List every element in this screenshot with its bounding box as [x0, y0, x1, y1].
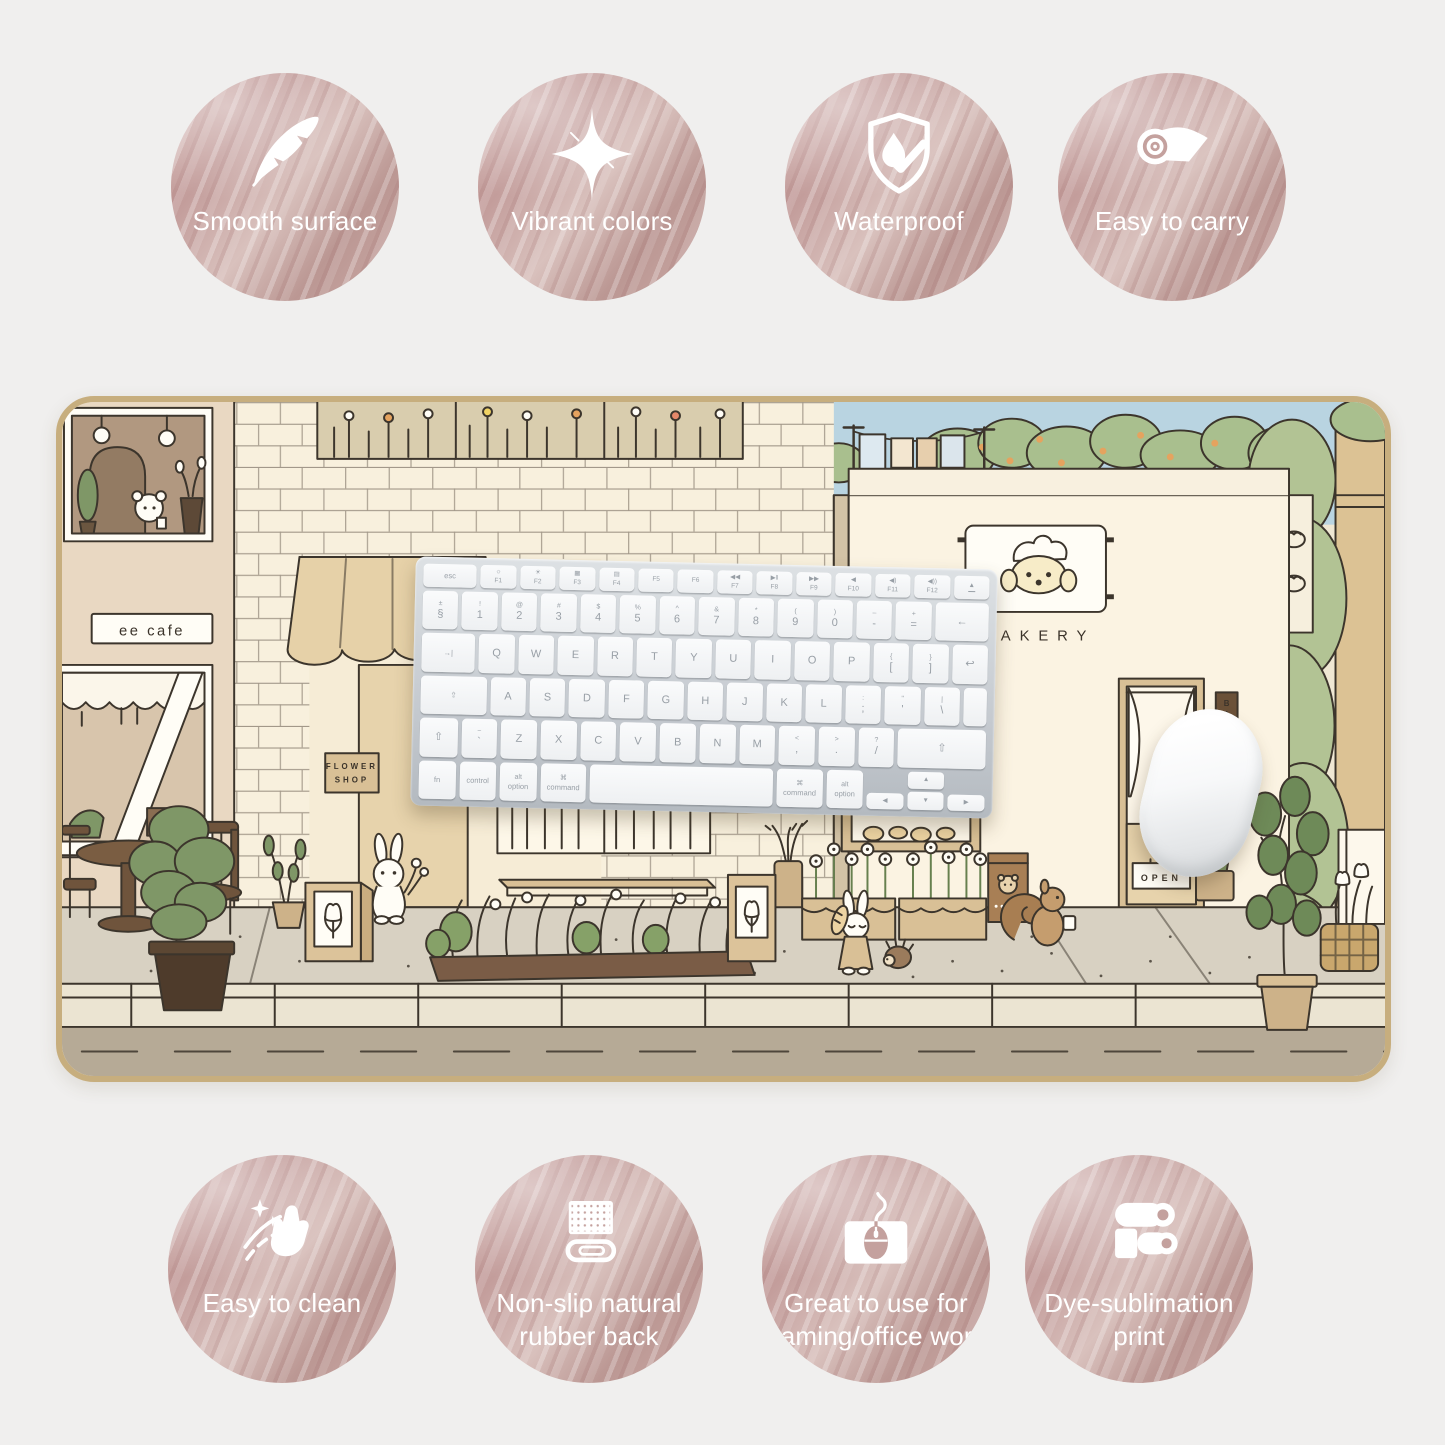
- keyboard-key-V: V: [620, 722, 657, 761]
- waterproof-shield-icon: [855, 107, 943, 201]
- keyboard-key-3: #3: [541, 593, 577, 632]
- keyboard-key-esc: esc: [423, 564, 477, 588]
- keyboard-key-space: [590, 764, 774, 807]
- keyboard-row: fncontrolaltoption⌘command⌘commandaltopt…: [418, 760, 985, 811]
- keyboard-key-B: B: [659, 723, 696, 762]
- tulip-sandwich-board-2: [728, 875, 775, 961]
- hanging-laundry: [860, 434, 965, 469]
- feature-badge-dye-sublimation: Dye-sublimation print: [1025, 1155, 1253, 1383]
- keyboard-key-Y: Y: [676, 639, 712, 678]
- keyboard-key-E: E: [557, 636, 593, 675]
- keyboard-key-;: :;: [845, 685, 881, 724]
- keyboard-key-H: H: [687, 681, 723, 720]
- cafe-sign-text: ee cafe: [119, 624, 185, 640]
- keyboard-key-F11: ◀)F11: [875, 574, 911, 598]
- keyboard-key-arrow-up-down: ▲▼: [907, 771, 944, 810]
- keyboard-key-F7: ◀◀F7: [717, 570, 753, 594]
- keyboard-key-F5: F5: [638, 568, 674, 592]
- keyboard-key-1: !1: [462, 591, 498, 630]
- keyboard-key-command-left: ⌘command: [540, 763, 587, 802]
- cafe-upper-window: [64, 408, 212, 541]
- keyboard-key-F4: ▤F4: [599, 568, 635, 592]
- tulip-sandwich-board-1: [305, 883, 372, 961]
- badge-label: Smooth surface: [193, 205, 378, 238]
- flower-shop-sign-line2: SHOP: [335, 776, 369, 785]
- keyboard-key-D: D: [569, 679, 605, 718]
- flower-shop-sign: FLOWER SHOP: [325, 753, 378, 792]
- keyboard-key-Q: Q: [478, 634, 514, 673]
- keyboard-key-return-lower: [963, 688, 987, 727]
- keyboard-key-T: T: [636, 638, 672, 677]
- keyboard-key-5: %5: [619, 595, 655, 634]
- keyboard-key-]: }]: [912, 644, 948, 683]
- computer-mouse-icon: [830, 1189, 922, 1283]
- keyboard-key-I: I: [755, 641, 791, 680]
- flower-shop-sign-line1: FLOWER: [326, 762, 378, 771]
- keyboard-key-2: @2: [501, 592, 537, 631]
- keyboard-key-J: J: [727, 682, 763, 721]
- keyboard-key-N: N: [699, 724, 736, 763]
- keyboard-key-control: control: [459, 761, 496, 800]
- keyboard-key-6: ^6: [659, 596, 695, 635]
- feature-badge-easy-to-carry: Easy to carry: [1058, 73, 1286, 301]
- feature-badge-waterproof: Waterproof: [785, 73, 1013, 301]
- badge-label: Easy to clean: [203, 1287, 362, 1320]
- keyboard-key-eject: ▲: [954, 576, 990, 600]
- keyboard-key-A: A: [490, 677, 526, 716]
- keyboard-key-option-right: altoption: [826, 769, 863, 808]
- badge-label: Non-slip natural rubber back: [496, 1287, 681, 1352]
- feature-badge-smooth-surface: Smooth surface: [171, 73, 399, 301]
- rolled-mat-icon: [1125, 107, 1219, 201]
- keyboard-key-[: {[: [873, 643, 909, 682]
- keyboard-key-Z: Z: [501, 720, 538, 759]
- keyboard-key-=: +=: [896, 601, 932, 640]
- keyboard-key-arrow-right: ▶: [948, 795, 985, 812]
- keyboard-key-option-left: altoption: [499, 762, 536, 801]
- keyboard-key-F2: ☀F2: [520, 566, 556, 590]
- keyboard-key-return: ↩: [952, 645, 988, 684]
- keyboard-key-0: )0: [817, 600, 853, 639]
- keyboard-key-R: R: [597, 637, 633, 676]
- keyboard-key-fn: fn: [418, 760, 455, 799]
- curb: [62, 984, 1385, 1027]
- keyboard-key-F8: ▶‖F8: [756, 571, 792, 595]
- feature-badge-non-slip: Non-slip natural rubber back: [475, 1155, 703, 1383]
- keyboard-key-F9: ▶▶F9: [796, 572, 832, 596]
- badge-label: Easy to carry: [1095, 205, 1249, 238]
- keyboard-key-4: $4: [580, 594, 616, 633]
- badge-label: Waterproof: [834, 205, 964, 238]
- keyboard-key-U: U: [715, 640, 751, 679]
- feature-badge-easy-to-clean: Easy to clean: [168, 1155, 396, 1383]
- keyboard-key-O: O: [794, 641, 830, 680]
- keyboard-key-7: &7: [698, 597, 734, 636]
- keyboard-key-F3: ▦F3: [559, 567, 595, 591]
- keyboard-key-tab: →|: [421, 633, 475, 673]
- keyboard-key-K: K: [766, 683, 802, 722]
- street: [62, 1027, 1385, 1076]
- keyboard-key--: –-: [856, 600, 892, 639]
- keyboard-key-L: L: [805, 684, 841, 723]
- feature-badge-gaming-office: Great to use for gaming/office work: [762, 1155, 990, 1383]
- keyboard-key-shift-right: ⇧: [898, 729, 986, 769]
- keyboard-key-S: S: [529, 678, 565, 717]
- keyboard-key-': "': [884, 686, 920, 725]
- cafe-sign: ee cafe: [92, 614, 213, 643]
- keyboard-key-,: <,: [779, 726, 816, 765]
- product-image: Smooth surface Vibrant colors Waterproof: [0, 0, 1445, 1445]
- bakery-dog-face: [1012, 556, 1065, 593]
- keyboard-key-F10: ◀F10: [835, 573, 871, 597]
- keyboard-key-.: >.: [818, 727, 855, 766]
- badge-label: Great to use for gaming/office work: [766, 1287, 986, 1352]
- badge-label: Dye-sublimation print: [1044, 1287, 1233, 1352]
- bakery-sign-text: BAKERY: [982, 628, 1095, 644]
- keyboard-key-C: C: [580, 721, 617, 760]
- keyboard-key-X: X: [540, 721, 577, 760]
- keyboard-key-/: ?/: [858, 728, 895, 767]
- keyboard-key-F12: ◀))F12: [914, 575, 950, 599]
- keyboard-key-§: ±§: [422, 591, 458, 630]
- keyboard-key-`: ~`: [461, 719, 498, 758]
- keyboard-key-P: P: [833, 642, 869, 681]
- cleaning-hand-icon: [236, 1189, 328, 1283]
- keyboard-key-\: |\: [924, 687, 960, 726]
- keyboard-key-F6: F6: [678, 569, 714, 593]
- print-rollers-icon: [1093, 1189, 1185, 1283]
- keyboard-key-F1: ☼F1: [480, 565, 516, 589]
- feather-icon: [239, 107, 331, 201]
- keyboard-key-capslock: ⇪: [420, 675, 486, 715]
- keyboard-key-8: *8: [738, 598, 774, 637]
- sparkle-icon: [544, 107, 640, 201]
- magic-keyboard: esc☼F1☀F2▦F3▤F4F5F6◀◀F7▶‖F8▶▶F9◀F10◀)F11…: [410, 556, 997, 818]
- flower-window-box: [317, 402, 742, 459]
- keyboard-key-G: G: [648, 681, 684, 720]
- feature-badge-vibrant-colors: Vibrant colors: [478, 73, 706, 301]
- keyboard-key-9: (9: [777, 599, 813, 638]
- keyboard-key-delete: ←: [935, 602, 989, 642]
- keyboard-key-W: W: [518, 635, 554, 674]
- rubber-back-icon: [543, 1189, 635, 1283]
- keyboard-key-command-right: ⌘command: [776, 768, 823, 807]
- keyboard-key-arrow-left: ◀: [867, 793, 904, 810]
- keyboard-key-M: M: [739, 725, 776, 764]
- keyboard-key-shift-left: ⇧: [419, 718, 457, 757]
- badge-label: Vibrant colors: [511, 205, 672, 238]
- keyboard-key-F: F: [608, 680, 644, 719]
